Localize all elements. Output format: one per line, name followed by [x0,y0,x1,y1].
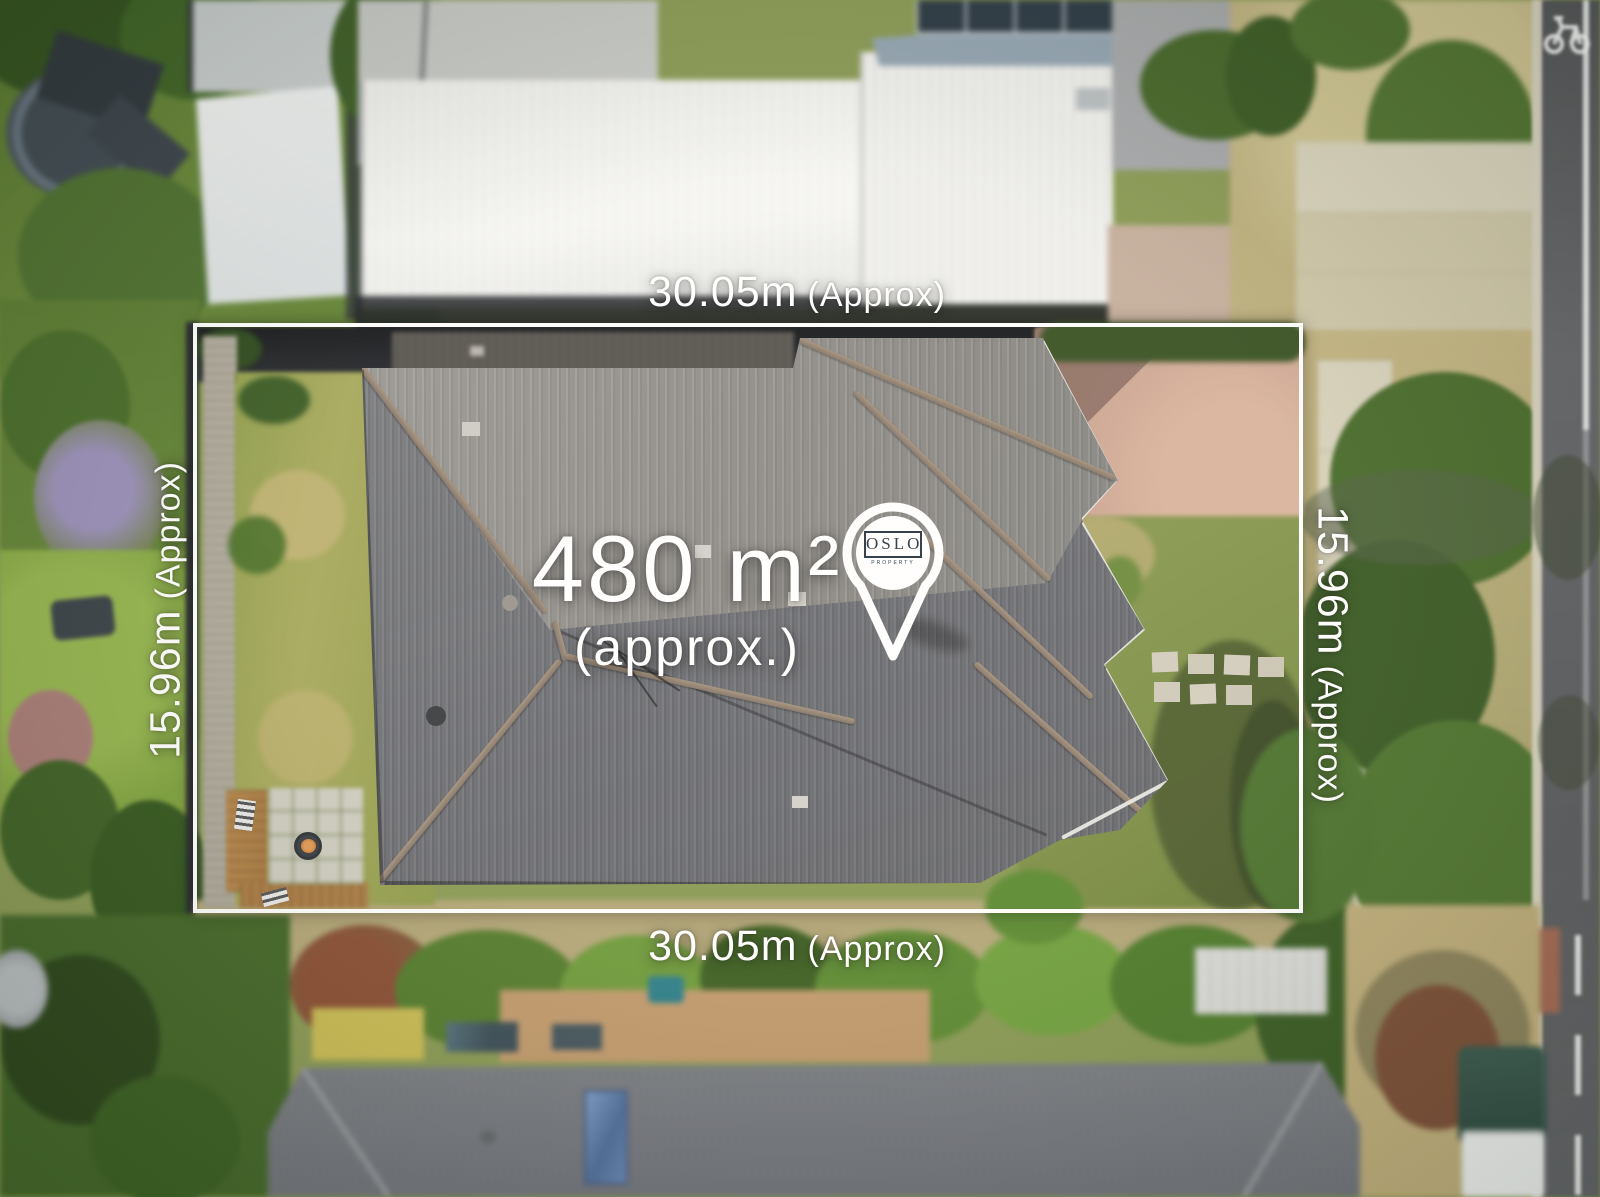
area-qualifier: (approx.) [532,620,843,677]
measurement-qualifier: (Approx) [150,461,188,599]
measurement-qualifier: (Approx) [1311,666,1349,804]
location-pin-icon [823,483,963,673]
measurement-qualifier: (Approx) [808,930,946,968]
measurement-value: 30.05m [648,922,797,970]
area-value: 480 m² [532,522,843,616]
measurement-top: 30.05m(Approx) [648,268,946,317]
agency-logo-subtext: PROPERTY [861,560,925,566]
aerial-property-photo: 30.05m(Approx) 30.05m(Approx) 15.96m(App… [0,0,1600,1197]
measurement-left: 15.96m(Approx) [142,461,191,759]
agency-logo-wordmark: OSLO [864,531,922,558]
land-area-label: 480 m² (approx.) [532,522,843,677]
measurement-value: 15.96m [1309,506,1357,655]
measurement-value: 15.96m [142,609,190,758]
measurement-value: 30.05m [648,268,797,316]
measurement-right: 15.96m(Approx) [1308,506,1357,804]
agency-logo: OSLO PROPERTY [861,531,925,566]
measurement-bottom: 30.05m(Approx) [648,922,946,971]
measurement-qualifier: (Approx) [808,276,946,314]
